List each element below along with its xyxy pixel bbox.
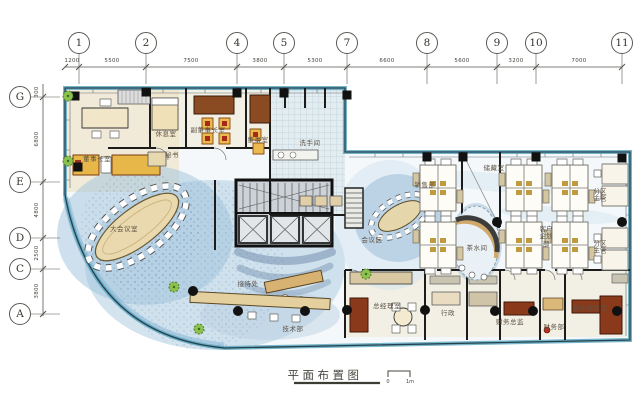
room-label-washroom: 洗手间 — [300, 137, 321, 147]
grid-axis-4: 4 — [226, 32, 248, 54]
grid-axis-E: E — [9, 171, 31, 193]
room-label-lounge: 休息室 — [156, 128, 177, 138]
grid-axis-A: A — [9, 303, 31, 325]
room-label-secretary: 秘书 — [165, 149, 179, 159]
grid-axis-D: D — [9, 227, 31, 249]
dim-left-6800: 6800 — [34, 131, 40, 146]
grid-axis-2: 2 — [135, 32, 157, 54]
dim-left-4800: 4800 — [34, 202, 40, 217]
dim-top-5600: 5600 — [454, 58, 469, 64]
grid-axis-G: G — [9, 86, 31, 108]
dim-top-1200: 1200 — [64, 58, 79, 64]
room-label-storage-room: 储藏室 — [484, 162, 505, 172]
room-label-main-conference: 大会议室 — [110, 223, 138, 233]
grid-axis-1: 1 — [68, 32, 90, 54]
dim-top-7500: 7500 — [183, 58, 198, 64]
dim-left-300: 300 — [34, 86, 40, 97]
room-label-zone-supervisor-2: 分区主管 — [592, 241, 608, 256]
grid-axis-5: 5 — [273, 32, 295, 54]
room-label-directors-room: 董事室 — [248, 134, 269, 144]
grid-axis-11: 11 — [611, 32, 633, 54]
grid-axis-8: 8 — [416, 32, 438, 54]
room-label-deputy-gm-office: 副总经理室 — [573, 302, 608, 312]
dim-left-3800: 3800 — [34, 283, 40, 298]
grid-axis-9: 9 — [486, 32, 508, 54]
room-label-reception: 接待处 — [238, 278, 259, 288]
room-label-finance-dept: 财务部 — [544, 321, 565, 331]
grid-axis-10: 10 — [525, 32, 547, 54]
dim-top-3800: 3800 — [252, 58, 267, 64]
dim-top-3200: 3200 — [508, 58, 523, 64]
room-label-tea-room: 茶水间 — [467, 242, 488, 252]
room-label-vice-chairman: 副董事长室 — [191, 124, 226, 134]
dim-top-6600: 6600 — [379, 58, 394, 64]
room-label-technical-dept: 技术部 — [283, 323, 304, 333]
dim-top-5500: 5500 — [104, 58, 119, 64]
room-label-admin: 行政 — [441, 307, 455, 317]
room-label-sales-dept: 销售部 — [415, 179, 436, 189]
room-label-zone-supervisor-1: 分区主管 — [592, 189, 608, 204]
room-label-gm-office: 总经理室 — [373, 300, 401, 310]
drawing-title: 平面布置图 — [288, 367, 363, 383]
scale-zero-label: 0 — [386, 379, 389, 385]
dim-top-5300: 5300 — [307, 58, 322, 64]
dim-top-7000: 7000 — [571, 58, 586, 64]
secondary-stair — [345, 188, 363, 228]
room-label-chairman-office: 董事长室 — [83, 153, 111, 163]
grid-axis-7: 7 — [336, 32, 358, 54]
scale-one-meter-label: 1m — [406, 379, 414, 385]
room-label-finance-director: 财务总监 — [496, 316, 524, 326]
room-label-client-planning: 客户企划部 — [538, 226, 554, 248]
room-label-meeting-area: 会议区 — [362, 234, 383, 244]
dim-left-2500: 2500 — [34, 245, 40, 260]
grid-axis-C: C — [9, 258, 31, 280]
floor-plan-page: 1 2 4 5 7 8 9 10 11 G E D C A 1200 5500 … — [0, 0, 640, 409]
